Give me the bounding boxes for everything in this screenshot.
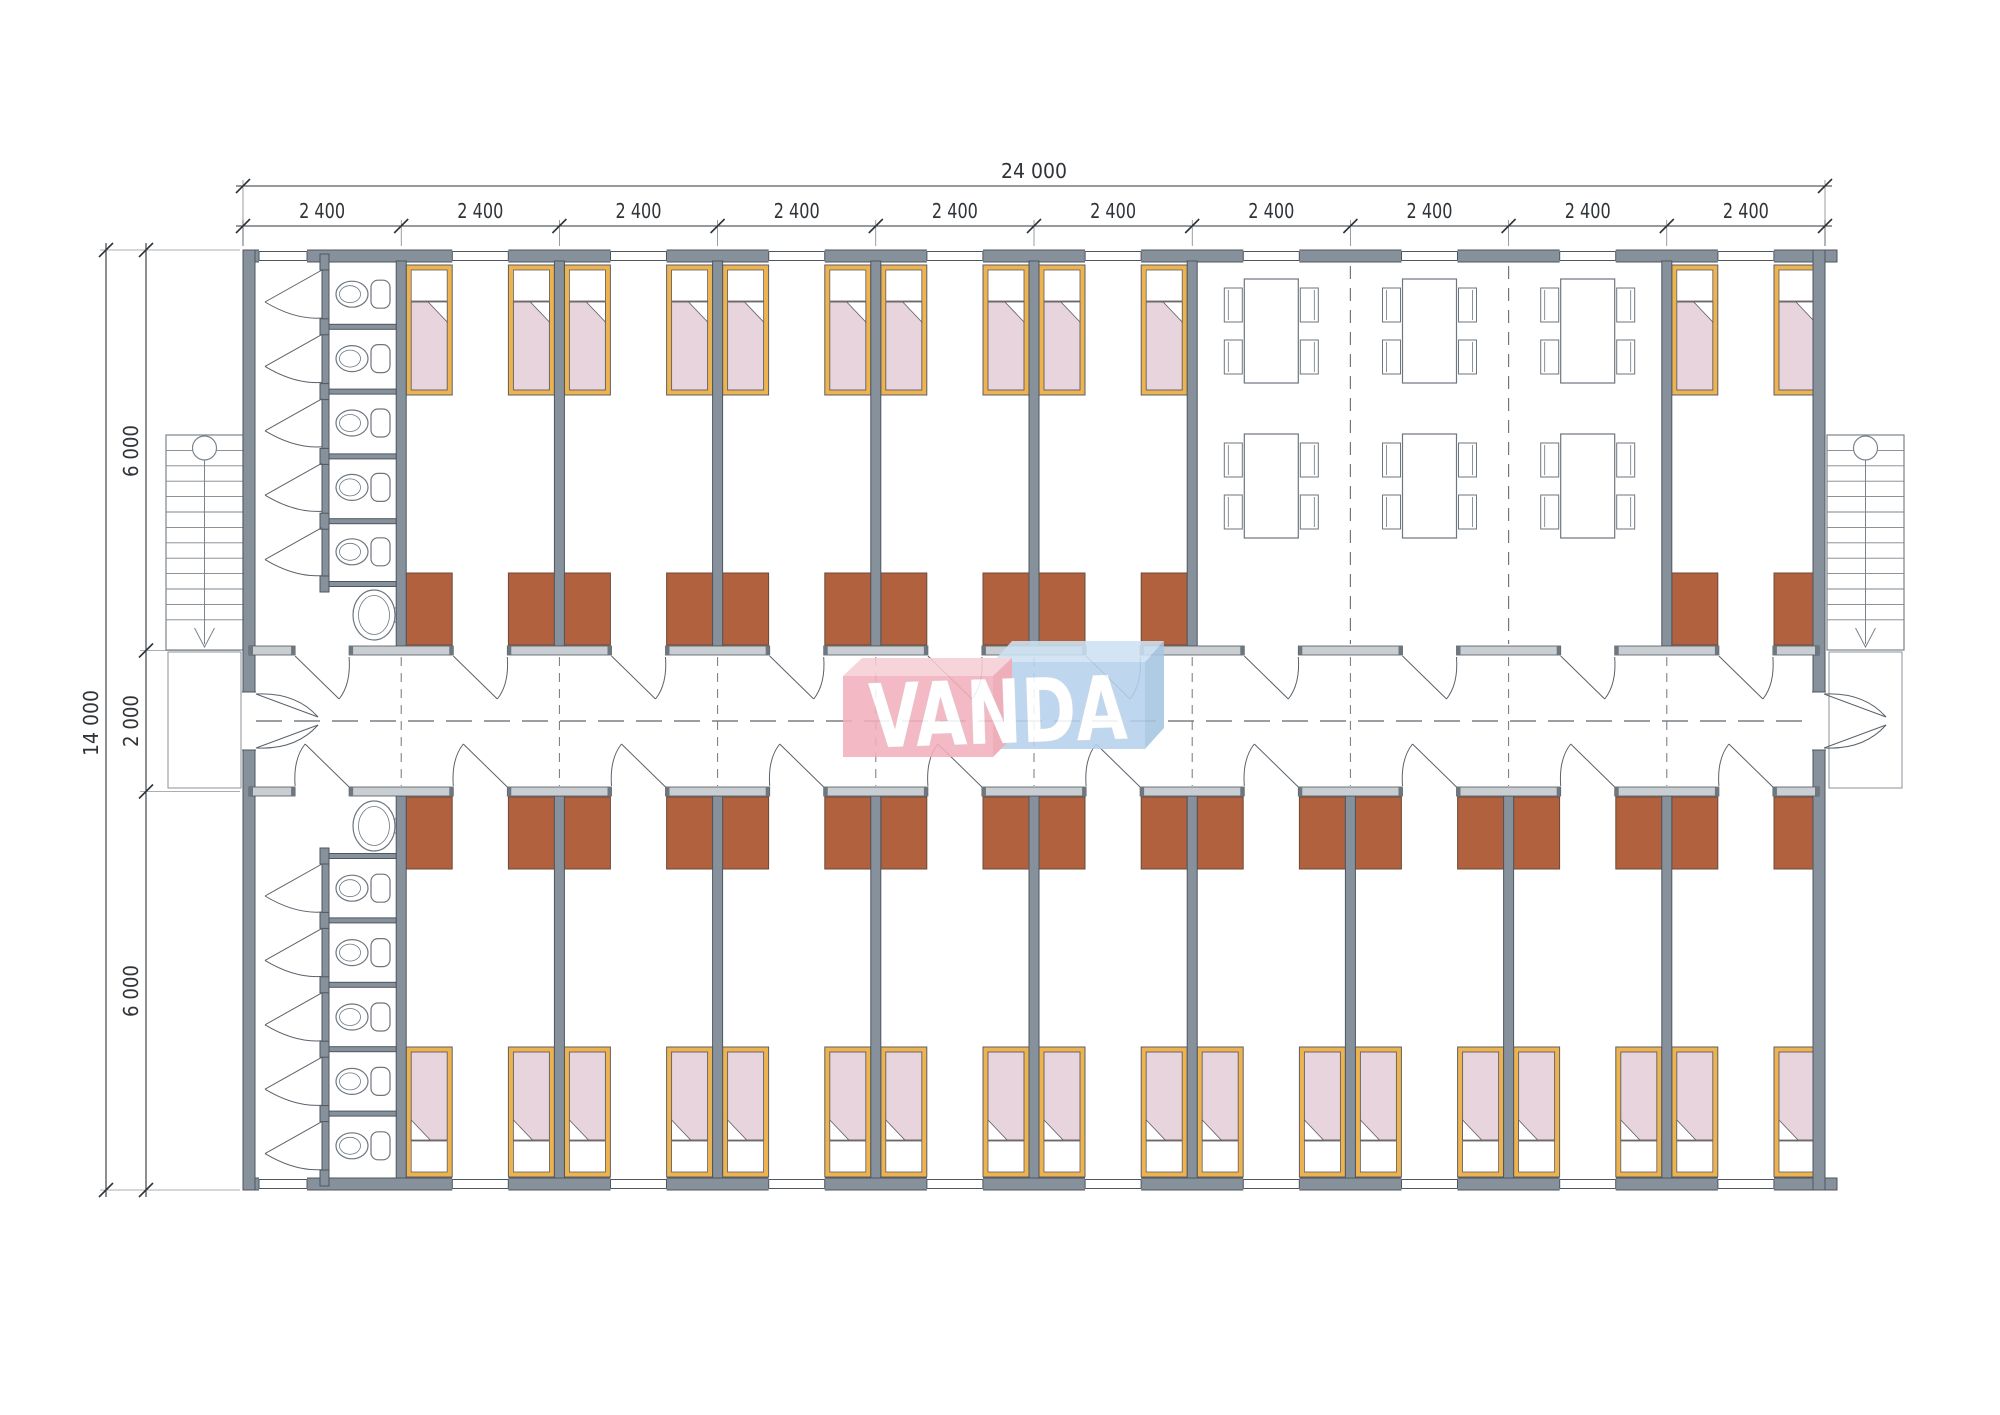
dining-table-group (1403, 434, 1457, 538)
wardrobe (564, 797, 610, 869)
bed (508, 265, 554, 395)
toilet-bowl (336, 1133, 368, 1159)
door-leaf (463, 744, 507, 787)
sink (353, 801, 400, 851)
stall-door-arc (265, 1089, 322, 1105)
corridor-wall (1773, 646, 1819, 655)
door-swing-arc (295, 744, 305, 786)
door-swing-arc (1288, 657, 1298, 699)
corridor-wall-cap (1715, 787, 1719, 796)
stall-door-leaf (265, 270, 322, 302)
dining-table (1403, 279, 1457, 383)
chair-seat (1383, 288, 1401, 322)
chair-seat (1459, 443, 1477, 477)
dimension-label: 2 400 (1565, 199, 1611, 223)
bed (881, 265, 927, 395)
bed-pillow (728, 1141, 764, 1172)
wall (1662, 261, 1672, 646)
window (1402, 1177, 1458, 1191)
dimension-label: 2 400 (932, 199, 978, 223)
wardrobe (723, 573, 769, 645)
bed (667, 265, 713, 395)
chair-seat (1383, 443, 1401, 477)
dimension-label: 6 000 (119, 965, 143, 1017)
end-door-opening (242, 692, 256, 750)
landing-right (1829, 652, 1902, 788)
corridor-wall (666, 787, 770, 796)
toilet-tank (371, 939, 390, 967)
sink-basin (353, 801, 395, 851)
dining-table-group (1244, 434, 1298, 538)
wardrobe (667, 797, 713, 869)
dimension-label: 2 400 (1723, 199, 1769, 223)
wardrobe (825, 797, 871, 869)
bed-pillow (1677, 1141, 1713, 1172)
door-swing-arc (769, 744, 779, 786)
bed (406, 265, 452, 395)
stall-door-arc (265, 1025, 322, 1041)
wardrobe (1616, 797, 1662, 869)
wall (396, 261, 406, 646)
corridor-wall-cap (1240, 646, 1244, 655)
toilet (336, 1067, 390, 1095)
wall (329, 324, 396, 329)
dining-table-group (1561, 279, 1615, 383)
dimension-label: 2 400 (1090, 199, 1136, 223)
wardrobe (564, 573, 610, 645)
staircase-right (1827, 435, 1904, 650)
wardrobe (1039, 573, 1085, 645)
corridor-wall-cap (924, 646, 928, 655)
bed (1141, 265, 1187, 395)
bed (1299, 1047, 1345, 1177)
door-leaf (622, 744, 666, 787)
wall (329, 918, 396, 923)
corridor-wall (1773, 787, 1819, 796)
door-swing-arc (1719, 744, 1729, 786)
wall (320, 576, 329, 592)
chair-seat (1224, 288, 1242, 322)
window (1243, 1177, 1299, 1191)
corridor-wall (824, 646, 928, 655)
dining-table (1244, 279, 1298, 383)
door-leaf (1729, 744, 1773, 787)
stall-door-arc (265, 896, 322, 912)
dining-chair (1224, 288, 1242, 322)
corridor-wall-cap (1457, 646, 1461, 655)
stall-door-arc (265, 1154, 322, 1170)
window (1085, 1177, 1141, 1191)
stair-start-marker (193, 436, 217, 460)
window (1243, 249, 1299, 263)
dining-chair (1617, 288, 1635, 322)
wardrobe (1141, 797, 1187, 869)
dining-chair (1541, 443, 1559, 477)
dimension-label: 2 400 (774, 199, 820, 223)
dining-chair (1617, 443, 1635, 477)
toilet (336, 538, 390, 566)
wardrobe (1672, 573, 1718, 645)
corridor-wall (666, 646, 770, 655)
corridor-wall-cap (982, 787, 986, 796)
bed (1672, 1047, 1718, 1177)
dining-chair (1459, 443, 1477, 477)
wall (554, 796, 564, 1178)
corridor-wall-cap (349, 646, 353, 655)
door-leaf (1719, 656, 1763, 699)
corridor-wall-cap (666, 787, 670, 796)
corridor-wall-cap (1399, 646, 1403, 655)
sink-basin (353, 590, 395, 640)
toilet-tank (371, 280, 390, 308)
corridor-wall-cap (291, 787, 295, 796)
wardrobe (667, 573, 713, 645)
corridor-wall (507, 787, 611, 796)
chair-seat (1617, 495, 1635, 529)
toilet-tank (371, 345, 390, 373)
wardrobe (406, 573, 452, 645)
door-swing-arc (611, 744, 621, 786)
corridor-wall-cap (291, 646, 295, 655)
dining-chair (1224, 340, 1242, 374)
corridor-wall (1298, 787, 1402, 796)
toilet-tank (371, 473, 390, 501)
corridor-wall-cap (1557, 787, 1561, 796)
toilet-bowl (336, 539, 368, 565)
dimension-label: 2 400 (299, 199, 345, 223)
toilet-bowl (336, 1004, 368, 1030)
stair-landing (168, 652, 241, 788)
stall-door-arc (265, 431, 322, 447)
corridor-wall (1457, 787, 1561, 796)
bed-pillow (513, 270, 549, 301)
bed-pillow (1202, 1141, 1238, 1172)
chair-seat (1541, 443, 1559, 477)
window (259, 249, 307, 263)
wall (1187, 261, 1197, 646)
corridor-wall-cap (666, 646, 670, 655)
wall (1187, 796, 1197, 1178)
wardrobe (406, 797, 452, 869)
wall (320, 254, 329, 270)
toilet-tank (371, 1132, 390, 1160)
stall-door-leaf (265, 1057, 322, 1089)
wall (320, 384, 329, 400)
window (1560, 249, 1616, 263)
window (1718, 1177, 1774, 1191)
stall-door-leaf (265, 928, 322, 960)
dimension-label: 2 400 (1248, 199, 1294, 223)
door-swing-arc (656, 657, 666, 699)
wall (320, 1041, 329, 1057)
corridor-wall-cap (1815, 787, 1819, 796)
dining-chair (1459, 340, 1477, 374)
bed-pillow (411, 1141, 447, 1172)
door-leaf (305, 744, 349, 787)
toilet (336, 345, 390, 373)
wall (329, 1047, 396, 1052)
wardrobe (1039, 797, 1085, 869)
chair-seat (1459, 340, 1477, 374)
logo-text: VANDA (867, 657, 1128, 769)
wall (320, 448, 329, 464)
window (1560, 1177, 1616, 1191)
bed (667, 1047, 713, 1177)
dining-chair (1224, 495, 1242, 529)
wall (396, 796, 406, 1178)
bed-pillow (569, 270, 605, 301)
bed-pillow (1304, 1141, 1340, 1172)
stall-door-leaf (265, 1122, 322, 1154)
door-leaf (1413, 744, 1457, 787)
wardrobe (1672, 797, 1718, 869)
chair-seat (1617, 288, 1635, 322)
bed-pillow (411, 270, 447, 301)
corridor-wall (1615, 787, 1719, 796)
bed (1039, 265, 1085, 395)
wall (320, 912, 329, 928)
dimension-label: 2 400 (1407, 199, 1453, 223)
corridor-wall-cap (1298, 646, 1302, 655)
corridor-wall-cap (1557, 646, 1561, 655)
stall-door-arc (265, 366, 322, 382)
stall-door-leaf (265, 334, 322, 366)
toilet (336, 409, 390, 437)
stall-door-arc (265, 495, 322, 511)
chair-seat (1459, 495, 1477, 529)
toilet (336, 473, 390, 501)
door-swing-arc (1244, 744, 1254, 786)
dining-chair (1383, 443, 1401, 477)
wall (320, 848, 329, 864)
window (769, 249, 825, 263)
bed-pillow (513, 1141, 549, 1172)
chair-seat (1300, 443, 1318, 477)
door-leaf (295, 656, 339, 699)
bed (983, 1047, 1029, 1177)
corridor-wall-cap (824, 787, 828, 796)
wardrobe (1197, 797, 1243, 869)
corridor-wall (1615, 646, 1719, 655)
toilet-tank (371, 1067, 390, 1095)
bed (564, 265, 610, 395)
corridor-wall-cap (1615, 646, 1619, 655)
door-leaf (780, 744, 824, 787)
vanda-logo: VANDA (843, 641, 1164, 768)
door-leaf (1244, 656, 1288, 699)
chair-seat (1617, 340, 1635, 374)
bed (881, 1047, 927, 1177)
toilet (336, 939, 390, 967)
corridor-wall (507, 646, 611, 655)
dining-chair (1383, 288, 1401, 322)
wall (320, 319, 329, 335)
corridor-wall-cap (249, 646, 253, 655)
dining-chair (1459, 495, 1477, 529)
dimension-label: 6 000 (119, 425, 143, 477)
wall (713, 796, 723, 1178)
corridor-wall (982, 787, 1086, 796)
end-door-opening (1812, 692, 1826, 750)
bed-pillow (1779, 270, 1815, 301)
wardrobe (1355, 797, 1401, 869)
wardrobe (508, 573, 554, 645)
wall (329, 389, 396, 394)
bed (1672, 265, 1718, 395)
door-swing-arc (814, 657, 824, 699)
bed-pillow (569, 1141, 605, 1172)
chair-seat (1300, 288, 1318, 322)
wardrobe (881, 797, 927, 869)
toilet-bowl (336, 410, 368, 436)
bed-pillow (1146, 1141, 1182, 1172)
door-leaf (612, 656, 656, 699)
floor-plan-page: 24 0002 4002 4002 4002 4002 4002 4002 40… (0, 0, 2000, 1415)
wall (1345, 796, 1355, 1178)
dining-chair (1300, 340, 1318, 374)
wardrobe (983, 573, 1029, 645)
bed (1616, 1047, 1662, 1177)
chair-seat (1541, 340, 1559, 374)
window (927, 249, 983, 263)
bed (723, 1047, 769, 1177)
corridor-wall-cap (1457, 787, 1461, 796)
window (1085, 249, 1141, 263)
stall-door-arc (265, 302, 322, 318)
chair-seat (1383, 495, 1401, 529)
toilet (336, 874, 390, 902)
wardrobe (881, 573, 927, 645)
door-swing-arc (497, 657, 507, 699)
wall (320, 977, 329, 993)
wall (329, 454, 396, 459)
door-leaf (1403, 656, 1447, 699)
toilet (336, 1132, 390, 1160)
wall (1029, 796, 1039, 1178)
door-swing-arc (1763, 657, 1773, 699)
corridor-wall-cap (608, 787, 612, 796)
window (611, 1177, 667, 1191)
dining-table-group (1244, 279, 1298, 383)
bed (825, 265, 871, 395)
bed-pillow (672, 270, 708, 301)
door-swing-arc (1560, 744, 1570, 786)
chair-seat (1383, 340, 1401, 374)
dining-table (1403, 434, 1457, 538)
bed-pillow (830, 270, 866, 301)
stair-start-marker (1854, 436, 1878, 460)
corridor-wall (349, 787, 453, 796)
chair-seat (1617, 443, 1635, 477)
dining-table (1561, 279, 1615, 383)
chair-seat (1224, 495, 1242, 529)
corridor-wall-cap (766, 787, 770, 796)
wall (320, 1170, 329, 1186)
stall-door-leaf (265, 864, 322, 896)
bed-pillow (988, 270, 1024, 301)
window (259, 1177, 307, 1191)
corridor-wall-cap (449, 787, 453, 796)
bed-pillow (1044, 270, 1080, 301)
door-swing-arc (1605, 657, 1615, 699)
corridor-wall-cap (507, 646, 511, 655)
wall (1662, 796, 1672, 1178)
dining-chair (1224, 443, 1242, 477)
corridor-wall (1457, 646, 1561, 655)
dining-chair (1383, 495, 1401, 529)
corridor-wall (824, 787, 928, 796)
wardrobe (723, 797, 769, 869)
toilet-tank (371, 409, 390, 437)
dining-chair (1541, 288, 1559, 322)
corridor-wall-cap (1715, 646, 1719, 655)
wardrobe (1514, 797, 1560, 869)
corridor-wall (1140, 787, 1244, 796)
door-leaf (1571, 744, 1615, 787)
wall (329, 519, 396, 524)
stall-door-leaf (265, 399, 322, 431)
wall (713, 261, 723, 646)
bed (1141, 1047, 1187, 1177)
bed (406, 1047, 452, 1177)
wall (320, 1106, 329, 1122)
door-swing-arc (339, 657, 349, 699)
toilet-tank (371, 874, 390, 902)
corridor-wall-cap (449, 646, 453, 655)
stall-door-leaf (265, 993, 322, 1025)
window (452, 1177, 508, 1191)
bed-pillow (1146, 270, 1182, 301)
dining-table (1244, 434, 1298, 538)
dining-chair (1617, 340, 1635, 374)
dimension-label: 2 400 (616, 199, 662, 223)
wardrobe (1299, 797, 1345, 869)
window (1402, 249, 1458, 263)
bed (723, 265, 769, 395)
dining-chair (1541, 495, 1559, 529)
wall (1029, 261, 1039, 646)
bed-pillow (886, 1141, 922, 1172)
corridor-wall-cap (924, 787, 928, 796)
dimension-label: 24 000 (1001, 159, 1067, 183)
dining-chair (1459, 288, 1477, 322)
door-leaf (453, 656, 497, 699)
wall (322, 262, 329, 584)
window (769, 1177, 825, 1191)
wall (1504, 796, 1514, 1178)
dimension-label: 2 400 (457, 199, 503, 223)
toilet-bowl (336, 940, 368, 966)
window (927, 1177, 983, 1191)
corridor-wall-cap (249, 787, 253, 796)
bed-pillow (1779, 1141, 1815, 1172)
dining-chair (1383, 340, 1401, 374)
bed (1458, 1047, 1504, 1177)
bed-pillow (672, 1141, 708, 1172)
window (452, 249, 508, 263)
toilet-bowl (336, 281, 368, 307)
bed (508, 1047, 554, 1177)
toilet-tank (371, 1003, 390, 1031)
bed (1355, 1047, 1401, 1177)
toilet (336, 1003, 390, 1031)
door-swing-arc (453, 744, 463, 786)
chair-seat (1224, 443, 1242, 477)
bed-pillow (728, 270, 764, 301)
bed-pillow (1360, 1141, 1396, 1172)
corridor-wall-cap (1082, 787, 1086, 796)
corridor-wall-cap (1615, 787, 1619, 796)
